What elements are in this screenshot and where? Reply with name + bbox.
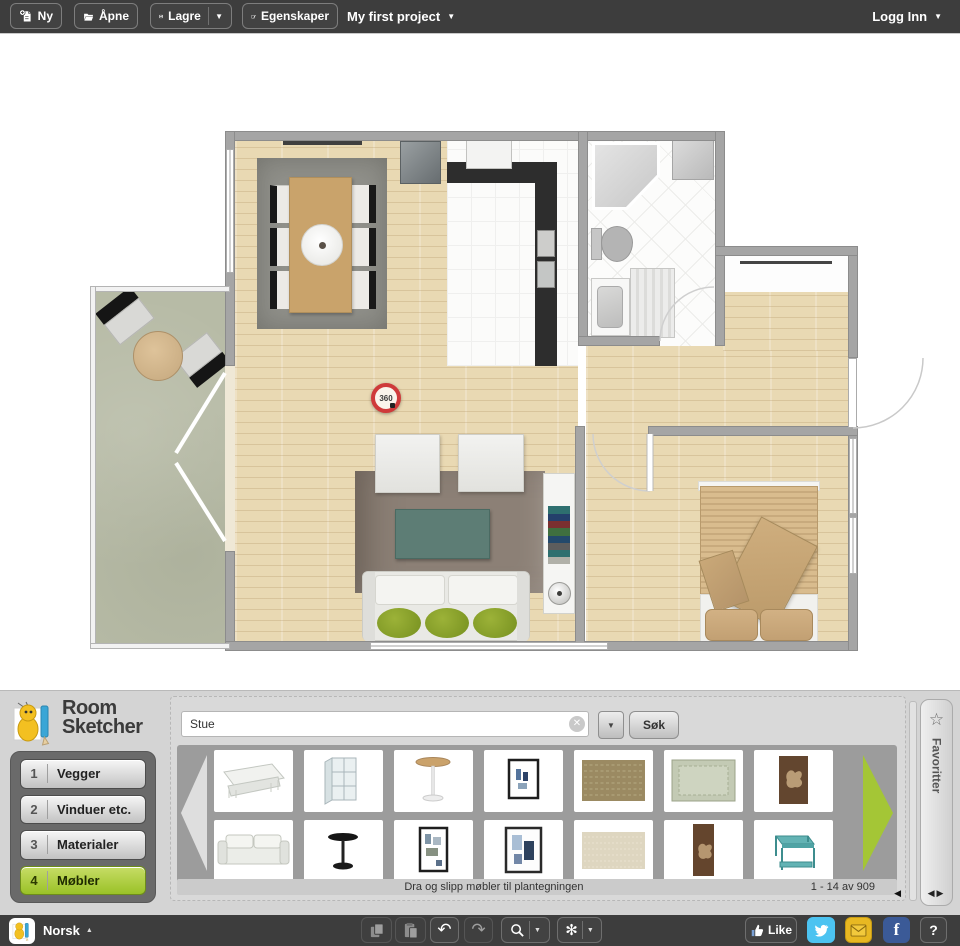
- save-floppy-icon: [159, 9, 163, 24]
- menu-number: 3: [21, 837, 47, 852]
- sofa-pillow-green: [473, 608, 517, 638]
- undo-button[interactable]: ↶: [430, 917, 459, 943]
- framed-art-collage-icon: [394, 820, 473, 882]
- window-sill: [283, 141, 362, 145]
- library-item-coffee-table-white[interactable]: [214, 750, 293, 812]
- balcony-table[interactable]: [133, 331, 183, 381]
- menu-number: 4: [21, 873, 47, 888]
- library-item-rug-green-bordered[interactable]: [664, 750, 743, 812]
- wall: [575, 426, 585, 651]
- sofa[interactable]: [362, 571, 530, 641]
- sofa-pillow-green: [425, 608, 469, 638]
- search-button[interactable]: Søk: [629, 711, 679, 739]
- like-label: Like: [768, 923, 792, 937]
- menu-number: 1: [21, 766, 47, 781]
- wall: [715, 246, 858, 256]
- camera-360-label: 360: [379, 394, 392, 403]
- wall: [225, 551, 235, 651]
- save-dropdown-icon[interactable]: ▼: [215, 12, 223, 21]
- bookshelf[interactable]: [543, 473, 575, 614]
- language-label: Norsk: [43, 923, 80, 938]
- favorites-label: Favoritter: [930, 738, 944, 888]
- menu-item-vinduer[interactable]: 2 Vinduer etc.: [20, 795, 146, 825]
- side-table-teal-icon: [754, 820, 833, 882]
- search-input[interactable]: [181, 711, 589, 737]
- camera-360-marker[interactable]: 360: [371, 383, 401, 413]
- page-previous-arrow[interactable]: [181, 755, 207, 871]
- favorites-expand-icon[interactable]: ◀▶: [928, 888, 946, 899]
- oven[interactable]: [537, 230, 555, 257]
- wall: [225, 131, 725, 141]
- wall: [715, 131, 725, 346]
- window[interactable]: [849, 438, 857, 514]
- bathroom-vanity[interactable]: [630, 268, 675, 338]
- sofa-pillow-green: [377, 608, 421, 638]
- project-name-menu[interactable]: My first project ▼: [347, 0, 455, 33]
- dining-chair[interactable]: [350, 271, 376, 309]
- brand-text: Room Sketcher: [62, 699, 143, 737]
- redo-icon: ↷: [471, 920, 485, 940]
- zoom-button[interactable]: ▼: [501, 917, 550, 943]
- thumbs-up-icon: [750, 923, 764, 937]
- zoom-split-divider: [529, 921, 530, 939]
- like-button[interactable]: Like: [745, 917, 797, 943]
- paste-icon: [403, 922, 419, 939]
- settings-dropdown-icon[interactable]: ▼: [587, 927, 594, 934]
- menu-label: Vegger: [48, 766, 100, 781]
- library-item-wall-art-flower[interactable]: [754, 750, 833, 812]
- login-dropdown-icon: ▼: [934, 12, 942, 21]
- login-menu[interactable]: Logg Inn ▼: [872, 0, 942, 33]
- menu-label: Møbler: [48, 873, 100, 888]
- library-item-wall-art-flower-tall[interactable]: [664, 820, 743, 882]
- language-menu[interactable]: Norsk ▲: [43, 915, 93, 946]
- library-item-framed-art-figures[interactable]: [484, 750, 563, 812]
- category-menu: 1 Vegger 2 Vinduer etc. 3 Materialer 4 M…: [10, 751, 156, 903]
- library-item-framed-art-blue[interactable]: [484, 820, 563, 882]
- pedestal-table-round-icon: [394, 750, 473, 812]
- wall-art-flower-tall-icon: [664, 820, 743, 882]
- top-toolbar: Ny Åpne Lagre ▼ Egenskaper My first proj…: [0, 0, 960, 34]
- chevron-down-icon: ▼: [607, 721, 615, 730]
- library-item-rug-brown-patterned[interactable]: [574, 750, 653, 812]
- menu-label: Vinduer etc.: [48, 802, 131, 817]
- rug-brown-patterned-icon: [574, 750, 653, 812]
- login-label: Logg Inn: [872, 9, 927, 24]
- sofa-back-cushion: [448, 575, 518, 605]
- result-count: 1 - 14 av 909: [811, 881, 875, 893]
- armchair[interactable]: [375, 434, 440, 493]
- sofa-white-icon: [214, 820, 293, 882]
- save-button-label: Lagre: [168, 9, 201, 23]
- page-next-arrow[interactable]: [863, 755, 893, 871]
- sofa-armrest: [363, 572, 375, 642]
- copy-button[interactable]: [361, 917, 392, 943]
- open-button-label: Åpne: [99, 9, 129, 23]
- paste-button[interactable]: [395, 917, 426, 943]
- properties-pencil-icon: [251, 9, 256, 24]
- library-footer: Dra og slipp møbler til plantegningen 1 …: [177, 879, 897, 895]
- roomsketcher-mini-logo[interactable]: [9, 918, 35, 944]
- library-item-pedestal-table-black[interactable]: [304, 820, 383, 882]
- project-name-label: My first project: [347, 9, 440, 24]
- project-dropdown-icon: ▼: [447, 12, 455, 21]
- library-item-display-cabinet-white[interactable]: [304, 750, 383, 812]
- wall: [848, 246, 858, 358]
- save-button[interactable]: Lagre ▼: [150, 3, 232, 29]
- open-button[interactable]: Åpne: [74, 3, 138, 29]
- properties-button-label: Egenskaper: [261, 9, 329, 23]
- armchair[interactable]: [458, 434, 524, 492]
- library-item-side-table-teal[interactable]: [754, 820, 833, 882]
- envelope-icon: [850, 924, 867, 937]
- drag-hint-text: Dra og slipp møbler til plantegningen: [177, 881, 811, 893]
- centerpiece-detail: [319, 242, 326, 249]
- wall: [578, 131, 588, 346]
- display-cabinet-white-icon: [304, 750, 383, 812]
- bed-pillow: [705, 609, 758, 641]
- furniture-grid: [214, 750, 833, 882]
- favorites-tab[interactable]: ☆ Favoritter ◀▶: [920, 699, 953, 906]
- menu-item-materialer[interactable]: 3 Materialer: [20, 830, 146, 860]
- open-folder-icon: [83, 9, 94, 24]
- stove[interactable]: [466, 139, 512, 169]
- collapse-panel-icon[interactable]: ◀: [894, 888, 901, 899]
- furniture-library-panel: ✕ ▼ Søk Dra og slipp møbler til plantegn…: [170, 696, 906, 901]
- brand-line2: Sketcher: [62, 718, 143, 737]
- wall: [648, 426, 858, 436]
- bathroom-cabinet[interactable]: [672, 138, 714, 180]
- menu-number: 2: [21, 802, 47, 817]
- facebook-f-icon: f: [894, 920, 900, 940]
- copy-icon: [369, 922, 385, 939]
- balcony-wall: [90, 286, 230, 292]
- sofa-armrest: [517, 572, 529, 642]
- coffee-table[interactable]: [395, 509, 490, 559]
- email-button[interactable]: [845, 917, 872, 943]
- pedestal-table-black-icon: [304, 820, 383, 882]
- menu-item-mobler[interactable]: 4 Møbler: [20, 866, 146, 896]
- dishwasher[interactable]: [537, 261, 555, 288]
- bottom-panel: Room Sketcher 1 Vegger 2 Vinduer etc. 3 …: [0, 690, 960, 915]
- redo-button[interactable]: ↷: [464, 917, 493, 943]
- question-icon: ?: [929, 922, 938, 938]
- library-scrollbar[interactable]: [909, 701, 917, 901]
- library-item-framed-art-collage[interactable]: [394, 820, 473, 882]
- dining-chair[interactable]: [350, 185, 376, 223]
- status-bar: Norsk ▲ ↶ ↷ ▼ ✻ ▼ Like: [0, 915, 960, 946]
- entrance-door[interactable]: [848, 358, 857, 428]
- bed-pillow: [760, 609, 813, 641]
- help-button[interactable]: ?: [920, 917, 947, 943]
- undo-icon: ↶: [437, 920, 451, 940]
- balcony-door-threshold: [225, 366, 235, 551]
- wall-art-flower-icon: [754, 750, 833, 812]
- balcony-wall: [90, 643, 230, 649]
- properties-button[interactable]: Egenskaper: [242, 3, 338, 29]
- new-button[interactable]: Ny: [10, 3, 62, 29]
- coffee-table-white-icon: [214, 750, 293, 812]
- wall: [578, 336, 660, 346]
- settings-split-divider: [582, 921, 583, 939]
- window[interactable]: [370, 642, 608, 650]
- facebook-button[interactable]: f: [883, 917, 910, 943]
- zoom-dropdown-icon[interactable]: ▼: [534, 927, 541, 934]
- mascot-icon: [12, 699, 56, 747]
- search-clear-icon[interactable]: ✕: [569, 716, 585, 732]
- menu-item-vegger[interactable]: 1 Vegger: [20, 759, 146, 789]
- new-button-label: Ny: [38, 9, 53, 23]
- settings-button[interactable]: ✻ ▼: [557, 917, 602, 943]
- magnifier-icon: [510, 923, 525, 938]
- closet-rail: [740, 261, 832, 264]
- library-item-rug-beige[interactable]: [574, 820, 653, 882]
- lamp-detail: [557, 591, 562, 596]
- roomsketcher-logo: Room Sketcher: [12, 699, 143, 747]
- library-item-sofa-white[interactable]: [214, 820, 293, 882]
- balcony-wall: [90, 286, 96, 649]
- sofa-back-cushion: [375, 575, 445, 605]
- plan-canvas[interactable]: 360: [0, 33, 960, 691]
- twitter-button[interactable]: [807, 917, 835, 943]
- books: [548, 506, 570, 564]
- roomsketcher-app: Ny Åpne Lagre ▼ Egenskaper My first proj…: [0, 0, 960, 946]
- search-dropdown-button[interactable]: ▼: [598, 711, 624, 739]
- search-button-label: Søk: [643, 718, 665, 732]
- sink-basin: [597, 286, 623, 328]
- twitter-bird-icon: [813, 922, 829, 938]
- framed-art-figures-icon: [484, 750, 563, 812]
- dining-chair[interactable]: [350, 228, 376, 266]
- rug-beige-icon: [574, 820, 653, 882]
- window[interactable]: [226, 149, 234, 273]
- mascot-small-icon: [12, 920, 32, 942]
- rug-green-bordered-icon: [664, 750, 743, 812]
- new-file-icon: [19, 8, 33, 24]
- settings-icon: ✻: [565, 921, 578, 939]
- window[interactable]: [849, 517, 857, 574]
- menu-label: Materialer: [48, 837, 118, 852]
- library-item-pedestal-table-round[interactable]: [394, 750, 473, 812]
- framed-art-blue-icon: [484, 820, 563, 882]
- fridge[interactable]: [400, 141, 441, 184]
- chevron-up-icon: ▲: [86, 927, 93, 934]
- furniture-results-region: [177, 745, 897, 885]
- star-icon: ☆: [929, 710, 944, 730]
